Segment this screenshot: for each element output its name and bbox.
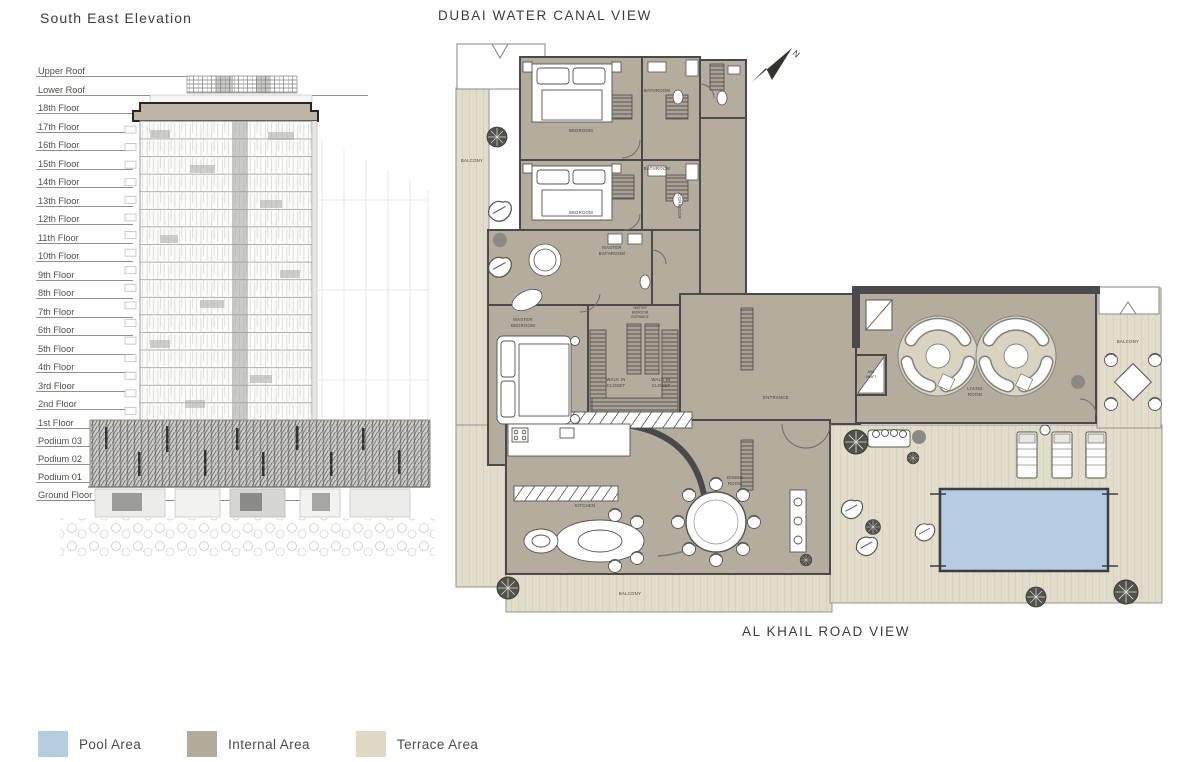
chair-icon [710,478,723,491]
terrace-bottom-balcony [506,572,832,612]
legend-item-terrace: Terrace Area [356,731,478,757]
chair-icon [1105,354,1118,367]
dining-table-icon [686,492,746,552]
room-master-bathroom [488,230,652,305]
legend-item-pool: Pool Area [38,731,141,757]
room-entrance-hall [680,294,860,424]
elevation-drawing: Upper Roof Lower Roof 18th Floor 17th Fl… [0,0,480,600]
tower-core [232,121,248,420]
room-corridor [700,118,746,294]
internal-area-swatch [187,731,217,757]
chair-icon [710,554,723,567]
floor-label: 15th Floor [38,159,79,169]
plant-icon [489,201,512,221]
side-table-icon [1071,375,1085,389]
roof-mechanical [187,76,297,93]
tree-icon [866,520,881,535]
tree-icon [844,430,868,454]
room-label-walk-in-closet-2: WALK IN [651,377,670,382]
sofa-cluster-icon [976,316,1056,396]
floor-label: Lower Roof [38,85,85,95]
room-label-living-room: LIVING [967,386,983,391]
floor-label: 7th Floor [38,307,74,317]
chair-icon [737,543,750,556]
room-label-master-bedroom-entrance: ENTRANCE [631,315,649,319]
floor-plan-drawing: BEDROOM BATHROOM BEDROOM BATHROOM MASTER… [440,30,1185,625]
floor-label: 12th Floor [38,214,79,224]
floor-label: 10th Floor [38,251,79,261]
room-label-living-room: ROOM [968,392,983,397]
floor-label: 3rd Floor [38,381,75,391]
chair-icon [1105,398,1118,411]
room-label-corridor: CORRIDOR [677,193,682,218]
tower-edge-fin [312,121,317,420]
floor-label: 8th Floor [38,288,74,298]
side-table-icon [1040,425,1050,435]
sun-lounger-icon [1052,432,1072,478]
roof-landing-right [1099,287,1159,314]
floor-label: 4th Floor [38,362,74,372]
terrace-left-strip [456,88,489,428]
floor-label: 2nd Floor [38,399,77,409]
room-label-ahu-shaft: SHAFT [866,375,877,379]
room-label-balcony-left: BALCONY [461,158,483,163]
room-label-bathroom-1: BATHROOM [644,88,671,93]
pool-area-swatch [38,731,68,757]
legend-label: Pool Area [79,737,141,752]
floor-label: 5th Floor [38,344,74,354]
side-table-icon [912,430,926,444]
sun-lounger-icon [1017,432,1037,478]
chair-icon [609,509,622,522]
room-label-balcony-bottom: BALCONY [619,591,641,596]
terrace-area-swatch [356,731,386,757]
counter-hatch [514,486,618,501]
chair-icon [683,543,696,556]
chair-icon [683,489,696,502]
tower-balconies [124,121,138,420]
floor-label: Podium 02 [38,454,82,464]
room-label-ahu-shaft: AHU [868,370,875,374]
sofa-cluster-icon [898,316,978,396]
floor-label: 9th Floor [38,270,74,280]
floor-label: 13th Floor [38,196,79,206]
room-label-walk-in-closet-1: CLOSET [607,383,626,388]
floor-label: Podium 01 [38,472,82,482]
pool [930,489,1118,571]
chair-icon [672,516,685,529]
legend-item-internal: Internal Area [187,731,310,757]
room-label-balcony-right: BALCONY [1117,339,1139,344]
tree-icon [907,452,919,464]
podium [90,420,430,487]
tree-icon [1026,587,1046,607]
room-label-bedroom-1: BEDROOM [569,128,593,133]
lower-roof-slab [150,95,312,103]
floor-label: 6th Floor [38,325,74,335]
tree-icon [497,577,519,599]
chair-icon [1149,354,1162,367]
plan-bottom-title: AL KHAIL ROAD VIEW [742,624,910,639]
floor-label: 1st Floor [38,418,74,428]
room-label-kitchen: KITCHEN [575,503,596,508]
legend: Pool Area Internal Area Terrace Area [38,731,478,757]
landscape-trees-row [60,518,435,556]
floor-label: 18th Floor [38,103,79,113]
floor-label: 11th Floor [38,233,79,243]
floor-label: Upper Roof [38,66,85,76]
plan-top-title: DUBAI WATER CANAL VIEW [438,8,652,23]
room-label-master-bedroom-entrance: BEDROOM [632,311,649,315]
room-label-master-bedroom-entrance: MASTER [633,306,647,310]
chair-icon [1149,398,1162,411]
roof-mech-dark-cell [256,76,270,93]
room-label-entrance: ENTRANCE [763,395,789,400]
tree-icon [487,127,507,147]
side-table-icon [493,233,507,247]
chair-icon [737,489,750,502]
living-left-wall [852,286,860,348]
tree-icon [800,554,812,566]
room-label-walk-in-closet-1: WALK IN [606,377,625,382]
room-label-walk-in-closet-2: CLOSET [652,383,671,388]
penthouse-floor-highlight [133,103,318,121]
room-label-master-bathroom: MASTER [602,245,621,250]
legend-label: Internal Area [228,737,310,752]
floor-label: Ground Floor [38,490,92,500]
sun-lounger-icon [1086,432,1106,478]
roof-mech-dark-cell [215,76,233,93]
building-elevation-graphic [60,76,435,556]
room-label-master-bathroom: BATHROOM [599,251,626,256]
north-arrow-icon: N [752,48,802,82]
chair-icon [609,560,622,573]
room-label-dining-room: ROOM [728,481,743,486]
room-label-master-bedroom: MASTER [513,317,532,322]
floor-label: Podium 03 [38,436,82,446]
chair-icon [748,516,761,529]
bed-icon [523,62,621,122]
north-label: N [791,48,802,60]
floor-label: 16th Floor [38,140,79,150]
tree-icon [1114,580,1138,604]
master-bed-icon [497,336,580,424]
floor-label: 14th Floor [38,177,79,187]
room-label-bathroom-2: BATHROOM [644,166,671,171]
chair-icon [631,552,644,565]
room-label-master-bedroom: BEDROOM [511,323,535,328]
legend-label: Terrace Area [397,737,478,752]
chair-icon [631,516,644,529]
ground-floor-elements [95,489,410,517]
room-label-dining-room: DINING [727,475,744,480]
living-top-wall [852,286,1100,294]
credenza-icon [790,490,806,552]
tower-ghost-annex [318,140,430,418]
floor-label: 17th Floor [38,122,79,132]
outdoor-sofa-icon [868,430,910,448]
room-label-bedroom-2: BEDROOM [569,210,593,215]
